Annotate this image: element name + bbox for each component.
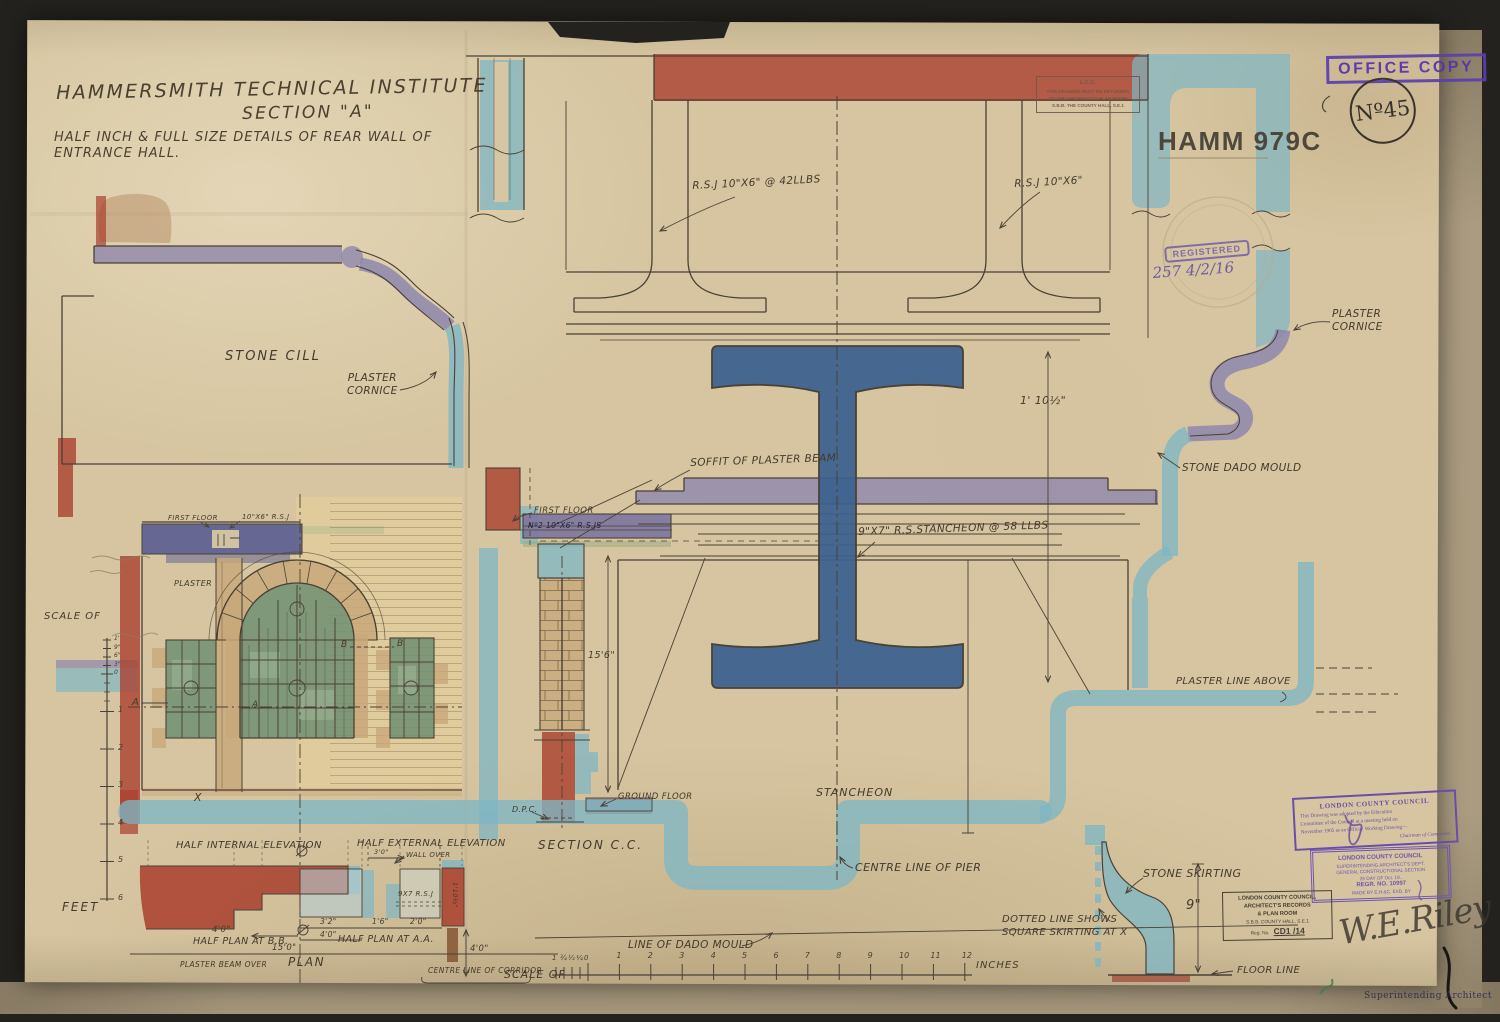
sheet-subtitle-line1: HALF INCH & FULL SIZE DETAILS OF REAR WA… — [54, 130, 432, 146]
lcc-return-stamp: L.C.C. THIS DRAWING MUST BE RETURNED TO … — [1036, 76, 1140, 113]
ruler-number: 7 — [805, 951, 810, 960]
hamm-reference-stamp: HAMM 979C — [1158, 126, 1322, 157]
dim-stancheon-width: 1' 10½" — [1020, 394, 1066, 408]
plan-room-stamp: LONDON COUNTY COUNCIL, ARCHITECT'S RECOR… — [1222, 890, 1333, 941]
dim-plan-4-0-b: 4'0" — [320, 930, 337, 939]
label-rsj-plan: 9X7 R.S.J — [398, 890, 433, 899]
ruler-number: 4 — [118, 818, 123, 827]
ruler-number: 1 — [616, 951, 621, 960]
label-plaster-beam-over: PLASTER BEAM OVER — [180, 960, 267, 969]
ruler-number: 8 — [836, 951, 841, 960]
records-header: LONDON COUNTY COUNCIL, ARCHITECT'S RECOR… — [1226, 894, 1328, 919]
label-plan: PLAN — [288, 955, 325, 970]
ruler-number: 0 — [584, 954, 588, 962]
label-stone-dado: STONE DADO MOULD — [1182, 462, 1301, 475]
label-plaster-elev: PLASTER — [174, 579, 212, 589]
marker-b-right: B — [397, 639, 404, 650]
marker-a-mid: A — [252, 700, 259, 711]
label-first-floor-elev: FIRST FLOOR — [168, 514, 218, 523]
records-reg-value: CD1 /14 — [1273, 926, 1304, 937]
label-rsj-elev: 10"X6" R.S.J — [242, 513, 289, 522]
ruler-number: 6" — [114, 652, 121, 659]
label-first-floor-sec: FIRST FLOOR — [534, 506, 594, 517]
feet-scale-prefix: SCALE OF — [44, 611, 101, 624]
marker-a-left: A — [132, 697, 139, 710]
ruler-number: 6 — [773, 951, 778, 960]
ruler-number: ¼ — [576, 954, 583, 962]
label-section-cc: SECTION C.C. — [538, 838, 643, 853]
ruler-number: 3" — [114, 661, 121, 668]
ruler-number: 9" — [114, 644, 121, 651]
office-copy-stamp: OFFICE COPY — [1326, 53, 1486, 84]
architect-role: Superintending Architect — [1364, 991, 1492, 1001]
label-rsjs-sec: Nº2 10"X6" R.S.JS — [528, 521, 602, 530]
dim-plan-3-2: 3'2" — [320, 917, 337, 926]
ruler-number: 1 — [552, 954, 556, 962]
label-half-internal: HALF INTERNAL ELEVATION — [176, 840, 322, 853]
lcc-return-header: L.C.C. — [1039, 79, 1137, 88]
sheet-title-line2: SECTION "A" — [242, 102, 374, 126]
label-plaster-line-above: PLASTER LINE ABOVE — [1176, 676, 1291, 689]
label-stone-skirting: STONE SKIRTING — [1143, 867, 1241, 881]
adopted-stamp: LONDON COUNTY COUNCIL This Drawing was a… — [1292, 789, 1459, 851]
drawing-scan: HAMMERSMITH TECHNICAL INSTITUTE SECTION … — [0, 0, 1500, 1022]
ruler-number: 11 — [930, 951, 940, 960]
label-stancheon: STANCHEON — [816, 786, 893, 800]
dim-plan-total: 15'0" — [272, 943, 296, 954]
records-reg-label: Reg. No. — [1251, 932, 1270, 937]
ruler-number: 4 — [711, 951, 716, 960]
ruler-number: 1 — [118, 705, 123, 714]
dim-plan-1-10: 1'10½" — [451, 882, 459, 908]
ruler-number: ¾ — [560, 954, 567, 962]
ruler-number: 5 — [742, 951, 747, 960]
label-ground-floor: GROUND FLOOR — [618, 792, 692, 803]
ruler-number: 2 — [118, 743, 123, 752]
label-wall-over: WALL OVER — [406, 851, 451, 860]
inches-scale-suffix: INCHES — [976, 960, 1020, 973]
ruler-number: 0 — [114, 669, 118, 676]
dim-pier-height: 15'6" — [588, 650, 615, 662]
label-stone-cill: STONE CILL — [225, 349, 321, 365]
dim-plan-1-6: 1'6" — [372, 917, 389, 926]
label-plaster-cornice-right: PLASTER CORNICE — [1332, 308, 1383, 334]
marker-b-left: B — [341, 640, 348, 651]
inches-scale-prefix: SCALE OF — [504, 968, 566, 982]
ruler-number: ½ — [568, 954, 575, 962]
marker-x: X — [194, 791, 202, 805]
lcc-return-body: THIS DRAWING MUST BE RETURNED TO THE ARC… — [1039, 88, 1137, 110]
ruler-number: 3 — [118, 780, 123, 789]
dim-plan-4-0-a: 4'0" — [212, 925, 231, 936]
label-half-plan-aa: HALF PLAN AT A.A. — [338, 934, 434, 946]
ruler-number: 6 — [118, 893, 123, 902]
feet-scale-suffix: FEET — [62, 900, 99, 915]
ruler-number: 3 — [679, 951, 684, 960]
label-floor-line: FLOOR LINE — [1237, 965, 1300, 978]
ruler-number: 9 — [868, 951, 873, 960]
paper-tear — [548, 22, 730, 43]
dim-skirting-height: 9" — [1186, 898, 1201, 914]
ruler-number: 2 — [648, 951, 653, 960]
ruler-number: 12 — [962, 951, 972, 960]
ruler-number: 1' — [114, 635, 119, 642]
label-dotted-note: DOTTED LINE SHOWS SQUARE SKIRTING AT X — [1002, 914, 1127, 939]
label-centre-pier: CENTRE LINE OF PIER — [855, 861, 981, 875]
label-plaster-cornice-left: PLASTER CORNICE — [347, 372, 398, 398]
sheet-subtitle-line2: ENTRANCE HALL. — [54, 146, 180, 162]
ruler-number: 10 — [899, 951, 909, 960]
dim-wall-over-width: 3'0" — [374, 848, 389, 856]
dim-plan-4-0-c: 4'0" — [470, 944, 489, 955]
dim-plan-2-0: 2'0" — [410, 917, 427, 926]
ruler-number: 5 — [118, 855, 123, 864]
label-dpc: D.P.C. — [512, 805, 538, 815]
